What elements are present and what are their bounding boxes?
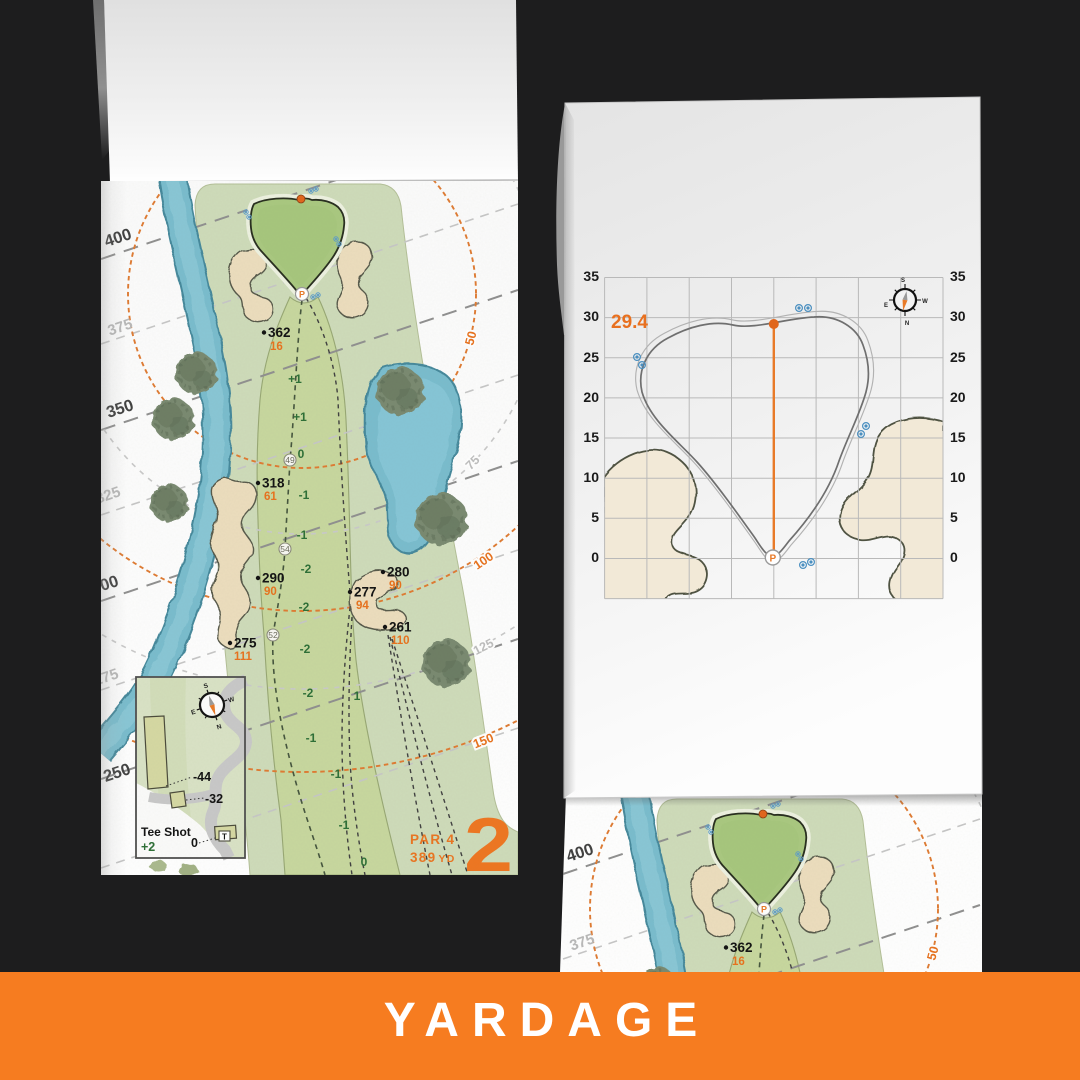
svg-text:5: 5	[950, 509, 958, 525]
svg-text:35: 35	[583, 268, 599, 284]
svg-text:P: P	[769, 553, 776, 564]
svg-text:0: 0	[591, 549, 599, 565]
svg-text:30: 30	[583, 308, 599, 324]
svg-text:YARDAGE: YARDAGE	[384, 994, 711, 1047]
svg-text:30: 30	[950, 308, 966, 324]
svg-text:W: W	[922, 299, 928, 305]
svg-text:20: 20	[950, 389, 966, 405]
svg-text:20: 20	[583, 389, 599, 405]
svg-text:25: 25	[583, 349, 599, 365]
svg-text:35: 35	[950, 268, 966, 284]
svg-text:25: 25	[950, 349, 966, 365]
svg-text:15: 15	[583, 429, 599, 445]
svg-text:29.4: 29.4	[611, 312, 648, 333]
svg-text:0: 0	[950, 549, 958, 565]
svg-text:5: 5	[591, 509, 599, 525]
svg-text:E: E	[884, 303, 888, 309]
svg-text:10: 10	[583, 469, 599, 485]
svg-text:15: 15	[950, 429, 966, 445]
svg-text:10: 10	[950, 469, 966, 485]
svg-text:N: N	[905, 321, 909, 327]
svg-text:S: S	[901, 278, 905, 284]
